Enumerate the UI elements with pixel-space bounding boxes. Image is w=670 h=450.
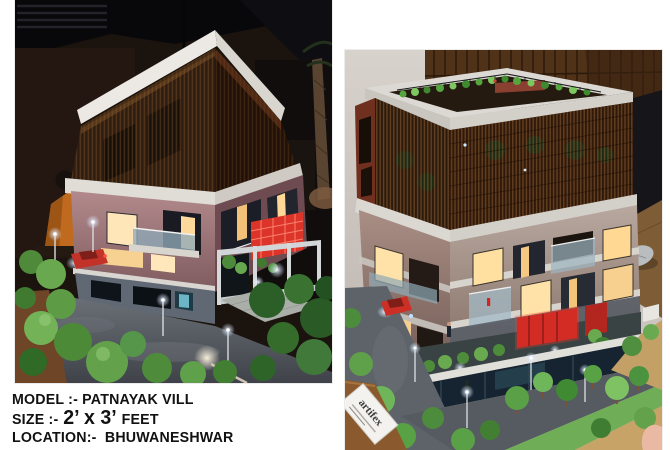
tiny-pedestrian <box>447 326 451 337</box>
lit-window <box>107 212 137 247</box>
caption-size-suffix: FEET <box>122 411 159 429</box>
collage: artifex MODEL :- PATNAYAK VILL SIZE :- 2… <box>0 0 670 450</box>
caption-location-line: LOCATION:- BHUWANESHWAR <box>12 429 234 447</box>
tiny-figure <box>487 298 490 306</box>
model-caption: MODEL :- PATNAYAK VILL SIZE :- 2’ x 3’ F… <box>12 391 238 447</box>
lit-window <box>473 248 503 286</box>
caption-model-line: MODEL :- PATNAYAK VILL <box>12 391 234 409</box>
photo-left <box>15 0 332 383</box>
photo-right: artifex <box>345 50 662 450</box>
caption-size-prefix: SIZE :- <box>12 411 58 429</box>
caption-size-value: 2’ x 3’ <box>63 409 116 427</box>
caption-size-line: SIZE :- 2’ x 3’ FEET <box>12 409 234 429</box>
